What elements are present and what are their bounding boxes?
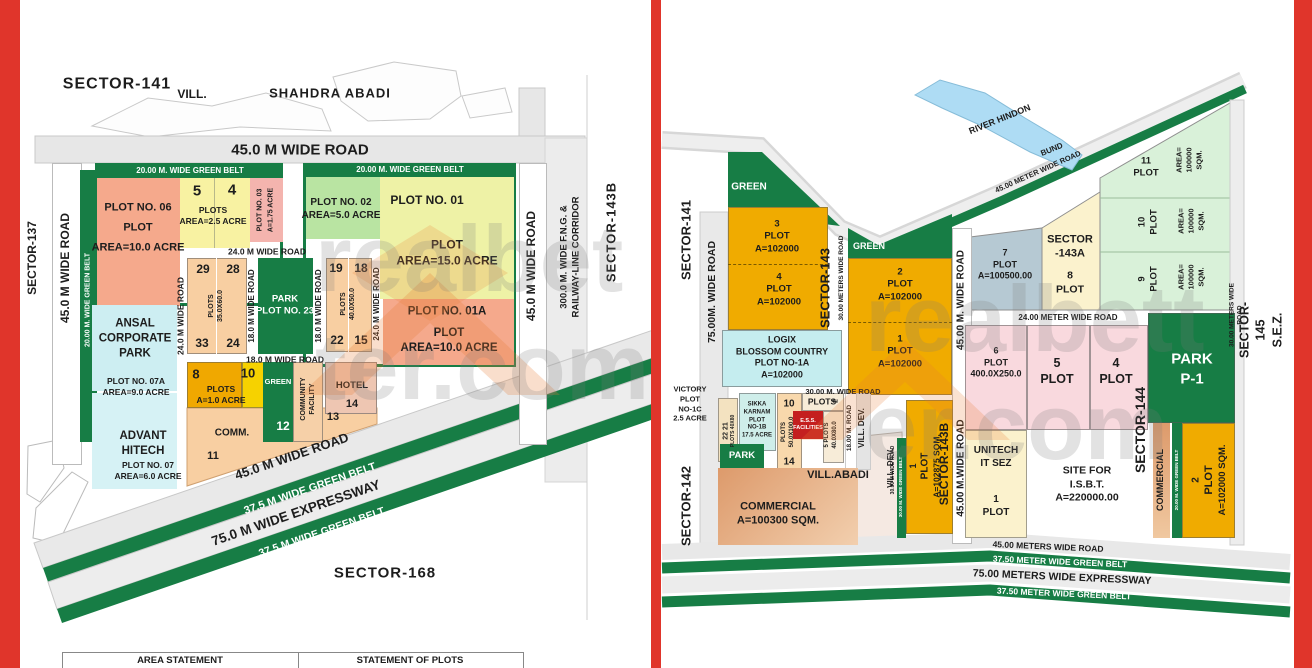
village-outline-3 [462, 88, 512, 118]
plot-2-label: 2 PLOT A=102000 [878, 266, 922, 303]
sikka-karnam-label: SIKKA KARNAM PLOT NO-1B 17.5 ACRE [742, 402, 772, 441]
greenbelt-30m-label: 30.00 M. WIDE GREEN BELT [898, 457, 904, 517]
road-24m-h-label: 24.0 M WIDE ROAD [228, 246, 306, 257]
road-24m-right-label: 24.00 METER WIDE ROAD [1018, 313, 1117, 323]
park-23-label: PARK PLOT NO. 23 [256, 294, 314, 319]
greenbelt-block2-label: 20.00 M. WIDE GREEN BELT [356, 165, 463, 175]
green-1-label: GREEN [731, 181, 767, 194]
road-45m-right-label: 45.0 M WIDE ROAD [524, 211, 540, 321]
advant-label: ADVANT HITECH [119, 429, 166, 459]
road-24m-vl-label: 24.0 M WIDE ROAD [175, 277, 186, 355]
greenbelt-left-label: 20.00 M. WIDE GREEN BELT [83, 253, 92, 347]
plot-01a-label: PLOT NO. 01A [408, 305, 487, 320]
sector-143a-label: SECTOR -143A [1047, 233, 1093, 262]
plot-11-label: 11 PLOT [1133, 156, 1158, 181]
road-30m-v-label: 30.00 METERS WIDE ROAD [838, 236, 846, 321]
plot-11-number: 11 [207, 449, 219, 463]
green-2-label: GREEN [853, 241, 885, 253]
logix-label: LOGIX BLOSSOM COUNTRY PLOT NO-1A A=10200… [736, 335, 828, 382]
plot-14-number: 14 [346, 397, 358, 411]
plot-10-area-label: AREA= 100000 SQM. [1176, 208, 1205, 234]
plot-06-label: PLOT NO. 06 PLOT AREA=10.0 ACRE [92, 198, 185, 257]
plot-9-label: 9 PLOT [1137, 266, 1162, 291]
plot-10b-number: 10 [783, 398, 794, 411]
isbt-label: SITE FOR I.S.B.T. A=220000.00 [1055, 465, 1118, 506]
plot-4b-label: 4 PLOT [1099, 355, 1132, 388]
plot-19-number: 19 [329, 261, 342, 277]
plot-28-number: 28 [226, 262, 239, 278]
park-p1-label: PARK P-1 [1171, 350, 1212, 389]
plot-22-number: 22 [330, 333, 343, 349]
road-45m-v1-label: 45.00 M. WIDE ROAD [955, 250, 968, 350]
plot-5-number: 5 [193, 181, 201, 201]
plots-40x80-small-label: PLOTS 40X80 [730, 415, 737, 448]
plot-10-number: 10 [241, 366, 255, 383]
road-45m-top-label: 45.0 M WIDE ROAD [231, 140, 369, 160]
commercial-v-label: COMMERCIAL [1155, 449, 1167, 511]
plot-10-label: 10 PLOT [1137, 209, 1162, 234]
sector-145-label: SECTOR-145 S.E.Z. [1237, 302, 1286, 358]
shahdra-abadi-label: SHAHDRA ABADI [269, 86, 391, 103]
plot-18-number: 18 [354, 261, 367, 277]
plot-02-label: PLOT NO. 02 AREA=5.0 ACRE [302, 196, 381, 222]
plot-5-label: 5 PLOT [1040, 355, 1073, 388]
plot-7-label: 7 PLOT A=100500.00 [978, 247, 1032, 282]
road-45m-v2-label: 45.00 M.WIDE ROAD [955, 419, 968, 516]
road-18m-vr-label: 18.0 M WIDE ROAD [314, 269, 324, 342]
plot-03-area-label: A=1.75 ACRE [266, 188, 275, 232]
plot-2c-number: 2 [831, 399, 840, 403]
plot-1-label: 1 PLOT A=102000 [878, 333, 922, 370]
sector-141-right-label: SECTOR-141 [679, 200, 696, 280]
village-label: VILL. [177, 87, 206, 103]
fng-corridor-label: 300.0 M. WIDE F.N.G. & RAILWAY-LINE CORR… [559, 196, 584, 317]
plot-9-area-label: AREA= 100000 SQM. [1176, 264, 1205, 290]
plot-01a-area-label: PLOT AREA=10.0 ACRE [400, 326, 497, 356]
plots-3-4-divider [728, 264, 828, 265]
plots-1-2-divider [848, 322, 952, 323]
greenbelt-20m-v-label: 20.00 M. WIDE GREEN BELT [1174, 450, 1180, 510]
plot-12-number: 12 [276, 419, 289, 435]
plot-07-label: PLOT NO. 07 AREA=6.0 ACRE [115, 460, 182, 482]
sector-168-label: SECTOR-168 [334, 563, 436, 583]
plot-03-label: PLOT NO. 03 [255, 189, 264, 232]
plot-1v-plot-label: PLOT [919, 453, 932, 480]
unitech-label: UNITECH IT SEZ [974, 444, 1018, 470]
plot-11-area-label: AREA= 100000 SQM. [1174, 147, 1203, 173]
hotel-label: HOTEL [336, 380, 368, 392]
sector-137-label: SECTOR-137 [25, 221, 41, 295]
area-statement-header: AREA STATEMENT [137, 655, 223, 667]
plot-4-label: 4 PLOT A=102000 [757, 271, 801, 308]
vill-abadi-label: VILL.ABADI [807, 468, 869, 482]
road-24m-vr-label: 24.0 M WIDE ROAD [372, 267, 382, 340]
frame-bar-middle [651, 0, 661, 668]
plot-2b-area-label: A=102000 SQM. [1217, 444, 1229, 515]
victory-plot-label: VICTORY PLOT NO-1C 2.5 ACRE [673, 385, 706, 424]
plots-4050-label: PLOTS 40.0X50.0 [339, 288, 357, 320]
sector-143b-label: SECTOR-143B [604, 182, 621, 282]
unitech-plot-1-label: 1 PLOT [983, 493, 1010, 519]
commercial-label: COMMERCIAL A=100300 SQM. [737, 500, 819, 529]
plots-5-40x80-label: 5 PLOTS 40.0X80.0 [824, 421, 840, 448]
plot-8-label: 8 PLOT [1056, 269, 1084, 296]
ansal-label: ANSAL CORPORATE PARK [99, 317, 172, 362]
plot-01-area-label: PLOT AREA=15.0 ACRE [396, 237, 497, 268]
plot-4-number: 4 [228, 180, 236, 200]
comm-label: COMM. [215, 427, 249, 440]
road-45m-left-label: 45.0 M WIDE ROAD [58, 213, 74, 323]
plot-07a-label: PLOT NO. 07A AREA=9.0 ACRE [103, 376, 170, 398]
park-small-label: PARK [729, 450, 755, 462]
plot-6-label: 6 PLOT 400.0X250.0 [970, 345, 1021, 380]
plots-1acre-label: PLOTS A=1.0 ACRE [196, 384, 245, 406]
greenbelt-block1-label: 20.00 M. WIDE GREEN BELT [136, 166, 243, 176]
plot-24-number: 24 [226, 336, 239, 352]
sector-144-label: SECTOR-144 [1131, 387, 1149, 473]
road-30m-h-label: 30.00 M. WIDE ROAD [805, 387, 880, 397]
plot-2b-number: 2 [1190, 477, 1203, 483]
statement-of-plots-header: STATEMENT OF PLOTS [357, 655, 464, 667]
road-18m-right-label: 18.00 M. ROAD [846, 405, 854, 451]
sector-143-label: SECTOR-143 [818, 248, 835, 328]
plots-3560-label: PLOTS 35.0X60.0 [207, 290, 225, 322]
frame-bar-left [0, 0, 20, 668]
sector-141-label: SECTOR-141 [63, 75, 171, 96]
sector-plan-map: SECTOR-137 SECTOR-141 VILL. SHAHDRA ABAD… [0, 0, 1312, 668]
villdev-1-label: VILL. DEV. [857, 408, 867, 448]
plot-8-number: 8 [192, 367, 199, 384]
plot-01-label: PLOT NO. 01 [390, 193, 463, 209]
plot-33-number: 33 [195, 336, 208, 352]
sector-143b-big-label: SECTOR-143B [937, 423, 953, 505]
sector-142-label: SECTOR-142 [679, 466, 696, 546]
road-30m-tiny-label: 30.00 M WIDE ROAD [890, 446, 897, 495]
road-18m-h-label: 18.0 M WIDE ROAD [246, 354, 324, 365]
frame-bar-right [1294, 0, 1312, 668]
road-75m-label: 75.00M. WIDE ROAD [706, 241, 720, 343]
plot-13-number: 13 [327, 410, 339, 424]
plots-25acre-label: PLOTS AREA=2.5 ACRE [180, 205, 247, 227]
ess-facilities-label: E.S.S. FACILITIES [793, 418, 823, 432]
plot-2b-plot-label: PLOT [1202, 465, 1216, 494]
community-facility-label: COMMUNITY FACILITY [299, 377, 317, 420]
plot-14b-number: 14 [783, 456, 794, 469]
plot-29-number: 29 [196, 262, 209, 278]
road-stub-north [519, 88, 545, 138]
plot-3-label: 3 PLOT A=102000 [755, 218, 799, 255]
plot-15-number: 15 [354, 333, 367, 349]
green-strip-label: GREEN [265, 377, 292, 387]
